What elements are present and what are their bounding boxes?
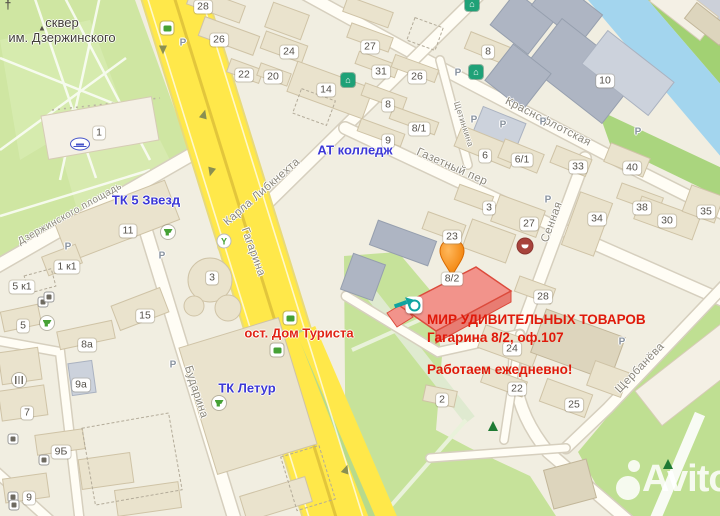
restaurant-icon	[12, 373, 26, 387]
building-number: 24	[280, 46, 298, 59]
map[interactable]: Карла ЛибкнехтаГагаринаКраснофлотскаяГаз…	[0, 0, 720, 516]
building-number: 33	[569, 161, 587, 174]
building-number: 10	[596, 75, 614, 88]
building-number: 6/1	[512, 154, 533, 167]
parking-icon: P	[540, 117, 547, 128]
street-label: Краснофлотская	[503, 95, 593, 149]
building-number: 34	[588, 213, 606, 226]
building-number: 40	[623, 162, 641, 175]
road-direction-arrow-icon	[206, 167, 216, 178]
small-poi-icon	[45, 293, 54, 302]
shopping-cart-icon	[40, 316, 54, 330]
street-label: Бударина	[182, 364, 210, 420]
road-direction-arrow-icon	[199, 109, 209, 120]
small-poi-icon	[9, 435, 18, 444]
building-number: 9а	[72, 379, 90, 392]
building-number: 35	[697, 206, 715, 219]
building-number: 26	[210, 34, 228, 47]
building-number: 9	[23, 492, 35, 505]
building-number: 5 к1	[9, 281, 34, 294]
building-number: 15	[136, 310, 154, 323]
poi-label[interactable]: АТ колледж	[317, 143, 392, 158]
building-number: 2	[436, 394, 448, 407]
poi-label[interactable]: ТК Летур	[218, 381, 275, 396]
small-poi-icon	[10, 501, 19, 510]
road-direction-arrow-icon	[341, 463, 351, 474]
building-number: 1	[93, 127, 105, 140]
bench-icon	[70, 138, 90, 151]
poi-label[interactable]: ост. Дом Туриста	[244, 326, 353, 341]
poi-label[interactable]: ТК 5 Звезд	[112, 193, 180, 208]
building-number: 27	[361, 41, 379, 54]
building-number: 30	[658, 215, 676, 228]
highlighted-building-number[interactable]: 8/2	[442, 273, 463, 286]
theater-icon	[518, 239, 533, 254]
parking-icon: P	[180, 38, 187, 49]
parking-icon: P	[170, 360, 177, 371]
road-direction-arrow-icon	[159, 46, 167, 55]
street-label: Дзержинского площадь	[16, 181, 124, 247]
building-number: 31	[372, 66, 390, 79]
building-number: 28	[194, 1, 212, 14]
annotation-title: МИР УДИВИТЕЛЬНЫХ ТОВАРОВ	[427, 311, 646, 329]
building-number: 8/1	[409, 123, 430, 136]
building-number: 5	[17, 320, 29, 333]
avito-logo-dot	[628, 460, 640, 472]
building-number: 22	[235, 69, 253, 82]
museum-icon	[469, 65, 483, 79]
building-number: 8	[482, 46, 494, 59]
labels-overlay: Карла ЛибкнехтаГагаринаКраснофлотскаяГаз…	[0, 0, 720, 516]
museum-icon	[341, 73, 355, 87]
street-label: Карла Либкнехта	[222, 156, 303, 228]
building-number: 3	[483, 202, 495, 215]
parking-icon: P	[635, 127, 642, 138]
building-number: 8а	[78, 339, 96, 352]
parking-icon: P	[455, 68, 462, 79]
building-number: 23	[443, 231, 461, 244]
street-label: Сенная	[539, 200, 565, 244]
roundabout-icon	[218, 235, 231, 248]
poi-label[interactable]: сквер им. Дзержинского	[8, 15, 115, 45]
building-number: 38	[633, 202, 651, 215]
building-number: 3	[206, 272, 218, 285]
building-number: 22	[508, 383, 526, 396]
building-number: 7	[21, 407, 33, 420]
building-number: 26	[408, 71, 426, 84]
listing-annotation: МИР УДИВИТЕЛЬНЫХ ТОВАРОВ Гагарина 8/2, о…	[427, 311, 646, 379]
avito-logo-dot	[616, 476, 640, 500]
church-icon	[5, 0, 12, 12]
bus-stop-icon	[284, 312, 297, 325]
building-number: 20	[264, 71, 282, 84]
tree-icon	[488, 421, 498, 431]
building-number: 14	[317, 84, 335, 97]
avito-watermark-text: Avito	[642, 458, 720, 501]
annotation-schedule: Работаем ежедневно!	[427, 361, 646, 379]
bus-stop-icon	[271, 344, 284, 357]
building-number: 11	[120, 225, 137, 238]
building-number: 1 к1	[54, 261, 79, 274]
building-number: 8	[382, 99, 394, 112]
building-number: 28	[534, 291, 552, 304]
shopping-cart-icon	[212, 396, 226, 410]
parking-icon: P	[159, 251, 166, 262]
small-poi-icon	[40, 456, 49, 465]
parking-icon: P	[500, 120, 507, 131]
building-number: 25	[565, 399, 583, 412]
building-number: 9Б	[52, 446, 71, 459]
street-label: Гагарина	[239, 226, 268, 278]
building-number: 27	[520, 218, 538, 231]
parking-icon: P	[545, 195, 552, 206]
parking-icon: P	[65, 242, 72, 253]
annotation-address: Гагарина 8/2, оф.107	[427, 329, 646, 347]
bus-stop-icon	[161, 22, 174, 35]
museum-icon	[465, 0, 479, 11]
tree-icon	[663, 459, 673, 469]
building-number: 6	[479, 150, 491, 163]
shopping-cart-icon	[161, 225, 175, 239]
parking-icon: P	[471, 115, 478, 126]
